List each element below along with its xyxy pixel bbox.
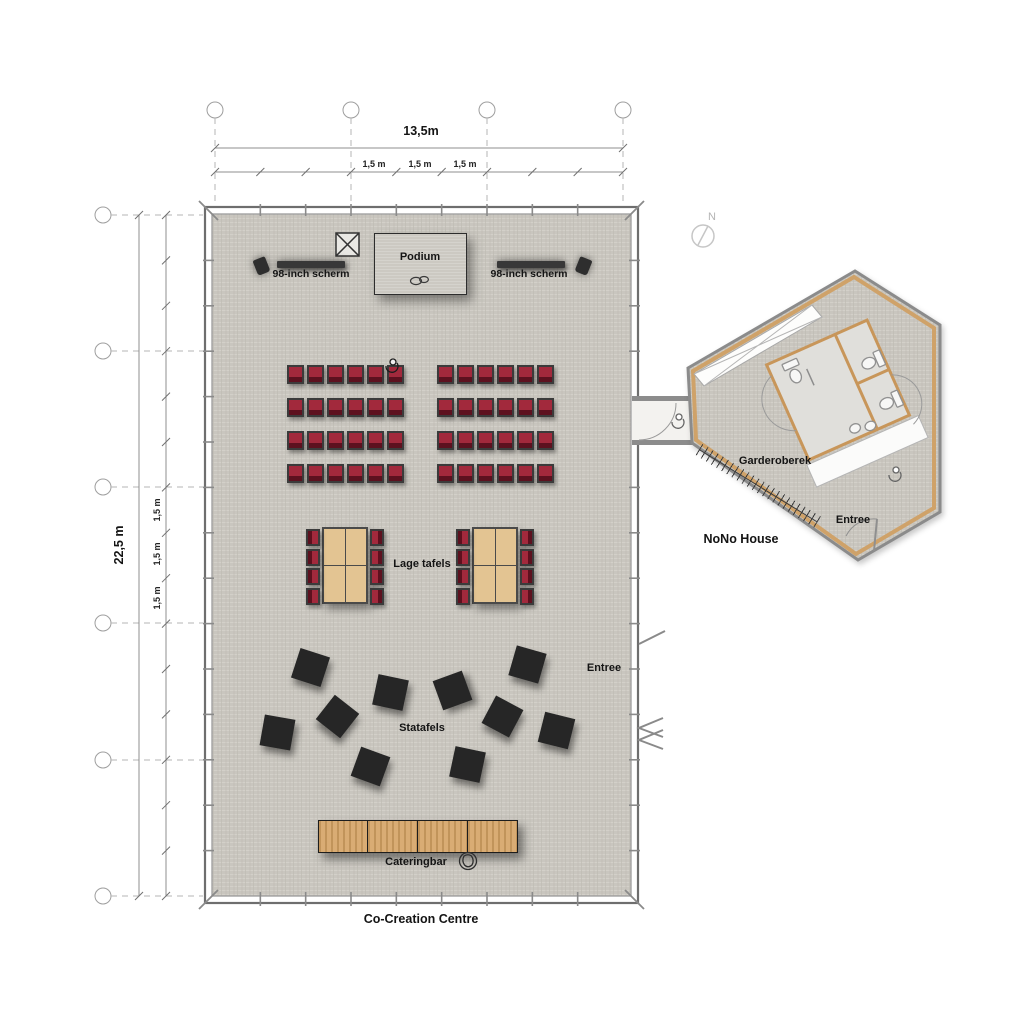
top-dimension-grid [207, 102, 631, 205]
north-arrow-icon [692, 225, 714, 247]
low-tables-label: Lage tafels [393, 558, 450, 570]
hall-entrance-door-symbols [639, 631, 665, 749]
co-creation-centre-hall [199, 201, 665, 909]
dim-side-segment-2: 1,5 m [152, 542, 162, 565]
floor-plan: 13,5m 1,5 m 1,5 m 1,5 m 22,5 m 1,5 m 1,5… [0, 0, 1030, 1030]
catering-label: Cateringbar [385, 856, 447, 868]
dim-top-segment-2: 1,5 m [408, 159, 431, 169]
standing-tables-label: Statafels [399, 722, 445, 734]
screen-left-label: 98-inch scherm [272, 268, 349, 280]
crossed-box-icon [336, 233, 359, 256]
dim-side-segment-3: 1,5 m [152, 586, 162, 609]
north-label: N [708, 211, 716, 223]
screen-right-label: 98-inch scherm [490, 268, 567, 280]
dim-overall-width: 13,5m [403, 124, 438, 138]
dim-overall-depth: 22,5 m [112, 526, 126, 565]
dim-top-segment-1: 1,5 m [362, 159, 385, 169]
hall-name-label: Co-Creation Centre [364, 912, 479, 926]
nono-entrance-label: Entree [836, 514, 870, 526]
wardrobe-label: Garderoberek [739, 455, 811, 467]
hall-entrance-label: Entree [587, 662, 621, 674]
nono-house-label: NoNo House [704, 532, 779, 546]
dim-side-segment-1: 1,5 m [152, 498, 162, 521]
dim-top-segment-3: 1,5 m [453, 159, 476, 169]
podium-label: Podium [400, 251, 440, 263]
nono-house [688, 271, 940, 560]
